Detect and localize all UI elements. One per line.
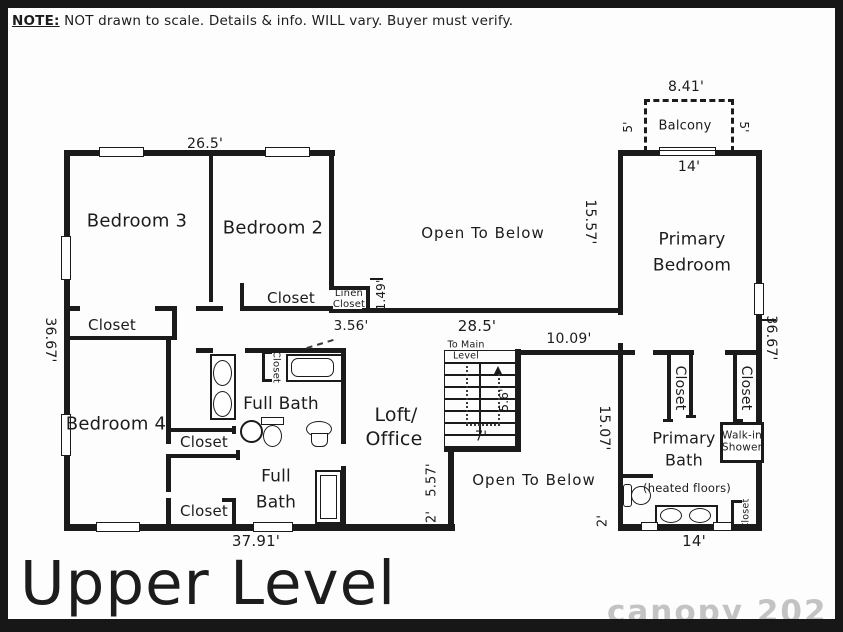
dim-stair-width: 7' <box>475 430 487 445</box>
dim-balcony-depth-left: 5' <box>621 121 635 132</box>
dim-top-left-width: 26.5' <box>187 136 223 152</box>
toilet-bowl <box>263 425 282 447</box>
wall <box>64 306 80 311</box>
dim-left-height: 36.67' <box>42 317 58 362</box>
wall <box>618 150 623 315</box>
room-label-mid-closet: Closet <box>180 433 228 451</box>
dim-linen-depth: 1.49' <box>374 279 388 310</box>
room-label-open-to-below-upper: Open To Below <box>421 224 545 242</box>
window <box>641 522 658 531</box>
window <box>61 236 71 280</box>
dim-open-below-height: 15.57' <box>582 199 598 244</box>
primary-bath-heated-floors-note: (heated floors) <box>643 481 731 495</box>
window <box>265 147 310 157</box>
dim-loft-stub: 2' <box>425 511 440 523</box>
room-label-open-to-below-lower: Open To Below <box>472 471 596 489</box>
wall <box>618 150 647 156</box>
wall <box>366 308 622 313</box>
dim-balcony-depth-right: 5' <box>737 121 751 132</box>
wall <box>236 450 240 460</box>
wall <box>166 498 171 526</box>
dim-hall-width: 10.09' <box>546 331 591 347</box>
room-label-primary-bedroom: Primary Bedroom <box>642 228 742 279</box>
room-label-full-bath-upper: Full Bath <box>243 394 319 414</box>
slider-door-rail <box>660 150 715 151</box>
sink-pedestal <box>311 433 328 447</box>
room-label-full-bath-lower: Full Bath <box>246 464 306 517</box>
sink <box>240 420 263 443</box>
wall <box>166 454 238 458</box>
room-label-primary-bath: Primary Bath <box>644 428 724 473</box>
wall <box>64 150 70 531</box>
sink <box>213 391 232 417</box>
wall <box>166 458 171 492</box>
floor-plan-canvas: NOTE: NOT drawn to scale. Details & info… <box>0 0 843 632</box>
wall <box>620 350 635 355</box>
wall <box>653 350 694 355</box>
wall <box>725 350 758 355</box>
wall <box>245 348 346 353</box>
wall <box>196 306 223 311</box>
room-label-primary-bath-closet: Closet <box>741 499 752 530</box>
window <box>99 147 144 157</box>
room-label-primary-closet-left: Closet <box>672 366 688 411</box>
dim-open-below-width: 28.5' <box>458 317 497 335</box>
window <box>96 522 140 532</box>
wall <box>667 352 671 422</box>
dim-primary-stub: 2' <box>596 515 611 527</box>
dim-stair-run: 5.6' <box>497 388 511 411</box>
room-label-primary-closet-right: Closet <box>738 366 754 411</box>
dim-primary-top-width: 14' <box>678 159 700 175</box>
wall <box>448 451 454 527</box>
room-label-lower-closet: Closet <box>180 502 228 520</box>
stairs-to-main-label: To Main Level <box>442 340 490 361</box>
watermark: canopy 202 <box>607 594 828 630</box>
wall <box>172 306 177 340</box>
wall <box>232 498 236 526</box>
slider-door <box>659 147 716 156</box>
dim-bottom-right-width: 14' <box>682 532 706 550</box>
wall <box>329 150 334 290</box>
room-label-bedroom2-closet: Closet <box>267 289 315 307</box>
window <box>253 522 293 532</box>
room-label-balcony: Balcony <box>659 119 712 134</box>
disclaimer-note: NOTE: NOT drawn to scale. Details & info… <box>12 13 513 29</box>
door-panel <box>320 475 337 519</box>
sink <box>689 508 711 523</box>
room-label-linen-closet: Linen Closet <box>329 288 369 310</box>
bathtub-basin <box>291 358 334 377</box>
wall <box>663 419 673 422</box>
dim-linen-width: 3.56' <box>334 318 369 334</box>
room-label-bedroom2: Bedroom 2 <box>223 218 323 239</box>
sink <box>660 508 682 523</box>
wall <box>516 350 620 355</box>
wall <box>240 283 244 308</box>
wall <box>262 351 265 382</box>
wall <box>622 474 653 478</box>
room-label-walk-in-shower: Walk-in Shower <box>720 430 764 454</box>
wall <box>166 428 236 432</box>
wall <box>209 152 213 302</box>
window <box>754 283 764 315</box>
wall <box>196 348 213 353</box>
toilet-tank <box>261 417 284 425</box>
dim-right-height: 36.67' <box>763 315 779 360</box>
wall <box>733 352 737 422</box>
page-title: Upper Level <box>20 548 396 619</box>
note-label: NOTE: <box>12 13 60 29</box>
room-label-bedroom4: Bedroom 4 <box>66 414 166 435</box>
dim-balcony-width: 8.41' <box>668 79 704 95</box>
note-text: NOT drawn to scale. Details & info. WILL… <box>60 13 514 29</box>
wall <box>689 352 693 418</box>
wall <box>686 415 696 418</box>
wall <box>64 336 174 340</box>
dim-loft-edge: 5.57' <box>425 463 440 497</box>
room-label-loft-line2: Office <box>366 428 423 450</box>
sink <box>213 360 232 386</box>
room-label-bedroom3: Bedroom 3 <box>87 211 187 232</box>
dim-open-lower-height: 15.07' <box>596 405 612 450</box>
window <box>713 522 732 531</box>
room-label-loft-line1: Loft/ <box>374 404 417 426</box>
wall <box>756 150 762 531</box>
room-label-tub-closet: Closet <box>271 351 282 383</box>
room-label-hall-closet: Closet <box>88 316 136 334</box>
wall <box>232 426 236 434</box>
